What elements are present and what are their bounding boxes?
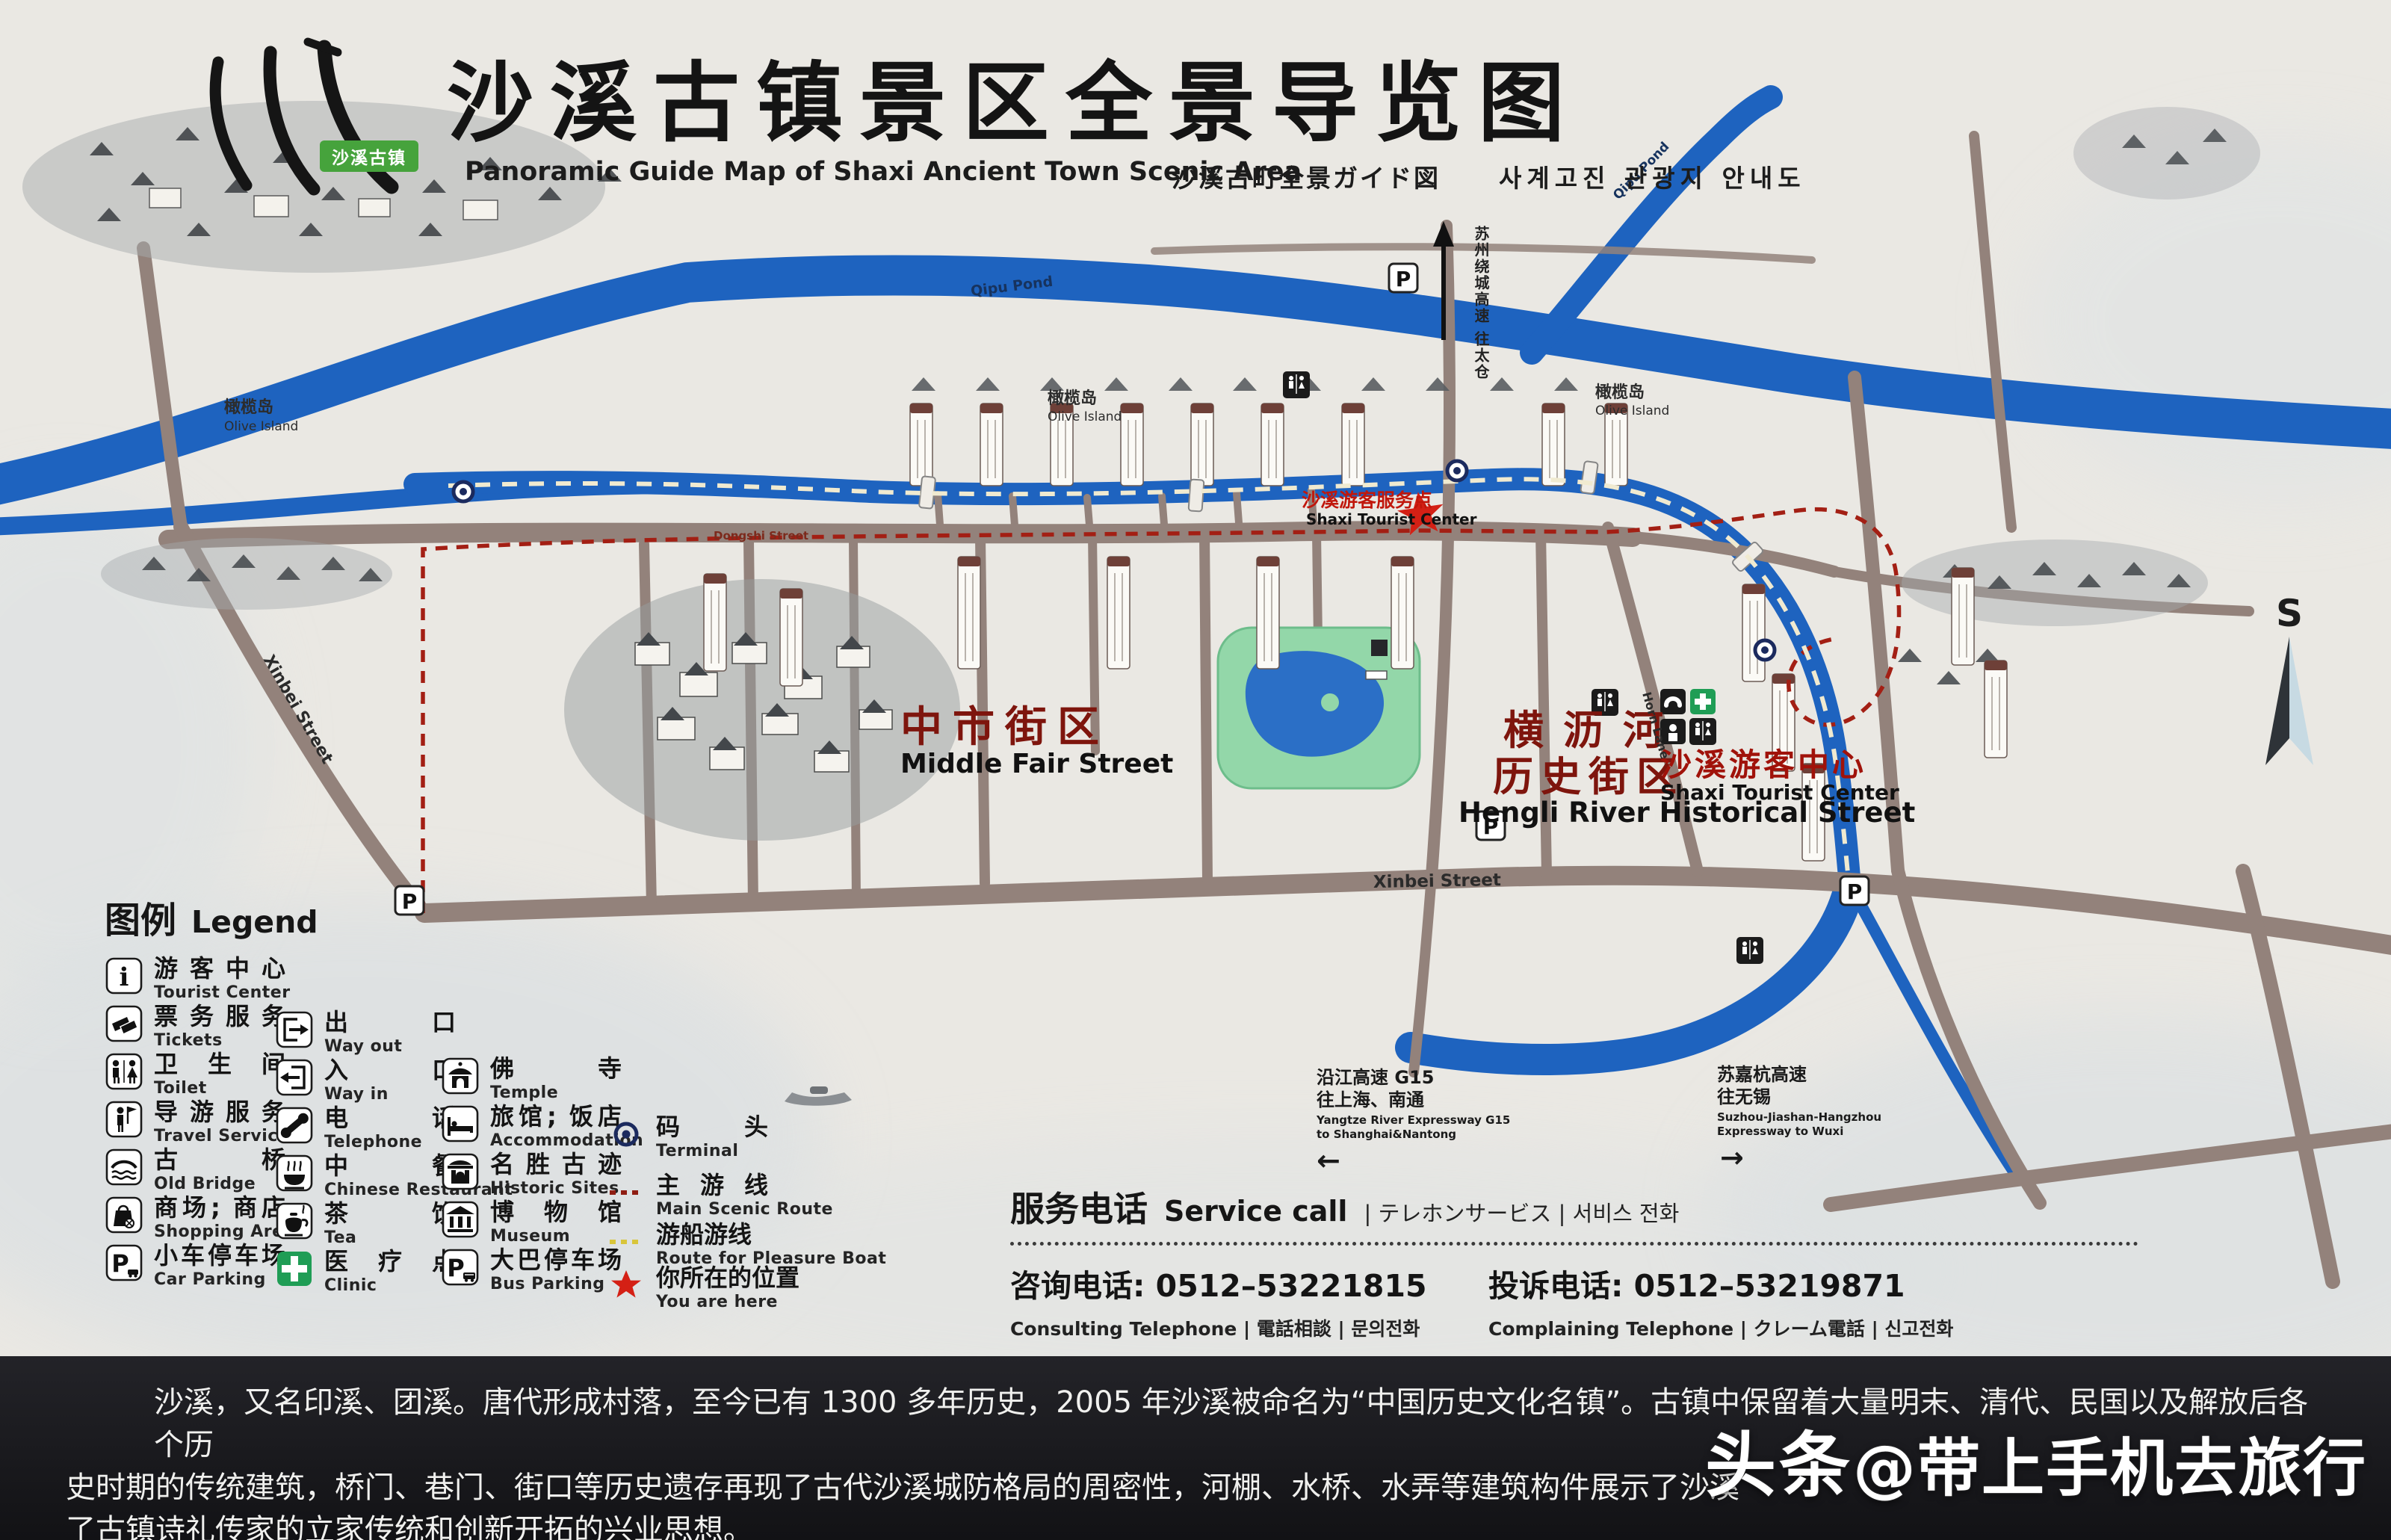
bus-parking-icon: P [441,1248,480,1287]
service-point-label-zh: 沙溪游客服务点 [1302,489,1432,511]
shaxi-tourist-center-label-en: Shaxi Tourist Center [1660,780,1899,805]
old-bridge-icon [105,1148,143,1187]
legend-item-temple: 佛寺Temple [441,1057,622,1102]
page-title: 沙溪古镇景区全景导览图 [447,33,1581,158]
legend-item-way-out: 出口Way out [275,1010,456,1056]
legend-item-bus-parking: P 大巴停车场Bus Parking [441,1248,622,1293]
sjh-arrow-icon: → [1720,1141,1744,1174]
service-call-title: 服务电话 Service call | テレホンサービス | 서비스 전화 [1010,1182,2176,1231]
logo-badge: 沙溪古镇 [320,140,418,172]
service-point-label-en: Shaxi Tourist Center [1306,510,1477,528]
pavilion-icon [1371,640,1388,656]
legend-item-terminal: 码头Terminal [607,1115,768,1160]
olive-island-label-en: Olive Island [1048,409,1122,424]
way-in-icon [275,1058,314,1097]
hengli-label-zh2: 历史街区 [1493,753,1684,800]
terminal-icon [607,1115,646,1154]
middle-fair-street-label-en: Middle Fair Street [900,749,1173,779]
shaxi-logo [196,36,427,211]
you-are-here-icon [607,1266,646,1305]
legend-item-boat-route: 游船游线Route for Pleasure Boat [607,1222,886,1268]
service-call-panel: 服务电话 Service call | テレホンサービス | 서비스 전화 咨询… [1010,1182,2176,1341]
legend-item-old-bridge: 古桥Old Bridge [105,1148,285,1193]
tea-icon [275,1202,314,1240]
svg-text:Yangtze River Expressway G15: Yangtze River Expressway G15 [1316,1113,1510,1127]
legend-item-you-are-here: 你所在的位置You are here [607,1266,799,1311]
legend-item-travel-service: 导游服务Travel Service [105,1100,289,1145]
temple-icon [441,1057,480,1095]
main-route-icon [607,1173,646,1212]
svg-text:to Shanghai&Nantong: to Shanghai&Nantong [1317,1128,1456,1141]
shopping-icon [105,1196,143,1234]
complaining-telephone: 投诉电话: 0512–53219871 Complaining Telephon… [1488,1261,1953,1341]
legend-item-main-route: 主游线Main Scenic Route [607,1173,833,1219]
shaxi-tourist-center-label-zh: 沙溪游客中心 [1660,746,1866,783]
svg-text:往无锡: 往无锡 [1717,1086,1771,1107]
north-exit-label: 苏州绕城高速 往太仓 [1470,226,1492,390]
dongshi-street-label: Dongshi Street [714,529,808,542]
legend-title: 图例 Legend [105,891,897,943]
pond-garden [1218,628,1420,788]
legend-item-car-parking: P 小车停车场Car Parking [105,1243,285,1289]
olive-island-label-zh: 橄榄岛 [1048,389,1097,408]
compass-s-label: S [2276,592,2303,635]
olive-island-label-zh: 橄榄岛 [1595,383,1645,402]
svg-text:苏嘉杭高速: 苏嘉杭高速 [1717,1064,1807,1085]
svg-text:Suzhou-Jiashan-Hangzhou: Suzhou-Jiashan-Hangzhou [1717,1110,1881,1124]
consulting-telephone: 咨询电话: 0512–53221815 Consulting Telephone… [1010,1261,1488,1341]
olive-island-label-en: Olive Island [224,419,298,434]
xinbei-street-label: Xinbei Street [1373,870,1501,892]
g15-arrow-icon: ← [1317,1144,1340,1177]
legend-item-tourist-center: i 游客中心Tourist Center [105,956,291,1002]
clinic-icon [275,1249,314,1288]
middle-fair-street-label-zh: 中市街区 [900,703,1110,752]
svg-text:沿江高速 G15: 沿江高速 G15 [1317,1067,1434,1088]
legend-panel: 图例 Legend i 游客中心Tourist Center 票务服务Ticke… [105,891,897,1369]
footer-band: 沙溪，又名印溪、团溪。唐代形成村落，至今已有 1300 多年历史，2005 年沙… [0,1356,2391,1540]
map-sign-photo: P [0,0,2391,1540]
legend-item-tea: 茶饮Tea [275,1202,456,1247]
boat-route-icon [607,1222,646,1261]
legend-item-clinic: 医疗点Clinic [275,1249,456,1295]
dotted-divider [1010,1242,2138,1246]
telephone-icon [275,1106,314,1145]
watermark: 头条 @带上手机去旅行 [1705,1408,2367,1511]
legend-item-historic-sites: 名胜古迹Historic Sites [441,1152,622,1198]
compass: S [2265,592,2313,765]
svg-text:i: i [120,962,129,992]
svg-text:P: P [447,1254,464,1282]
way-out-icon [275,1010,314,1049]
xinbei-street-label-west: Xinbei Street [259,652,337,768]
accommodation-icon [441,1104,480,1143]
olive-island-label-zh: 橄榄岛 [224,398,273,417]
subtitle-japanese: 沙溪古町全景ガイド図 [1172,158,1441,194]
legend-item-shopping: 商场; 商店Shopping Area [105,1196,295,1241]
chinese-restaurant-icon [275,1154,314,1193]
svg-text:P: P [111,1249,129,1278]
olive-island-label-en: Olive Island [1595,403,1669,418]
museum-icon [441,1200,480,1239]
car-parking-icon: P [105,1243,143,1282]
legend-item-telephone: 电话Telephone [275,1106,456,1151]
legend-item-museum: 博物馆Museum [441,1200,622,1246]
legend-item-way-in: 入口Way in [275,1058,456,1104]
svg-text:往上海、南通: 往上海、南通 [1317,1089,1424,1110]
tourist-center-icon: i [105,956,143,995]
tickets-icon [105,1004,143,1043]
toilet-icon [105,1052,143,1091]
legend-item-tickets: 票务服务Tickets [105,1004,285,1050]
south-river [1411,885,1850,1060]
legend-item-toilet: 卫生间Toilet [105,1052,285,1098]
subtitle-korean: 사계고진 관광지 안내도 [1499,158,1806,194]
svg-text:Expressway to Wuxi: Expressway to Wuxi [1717,1125,1843,1138]
travel-service-icon [105,1100,143,1139]
historic-sites-icon [441,1152,480,1191]
